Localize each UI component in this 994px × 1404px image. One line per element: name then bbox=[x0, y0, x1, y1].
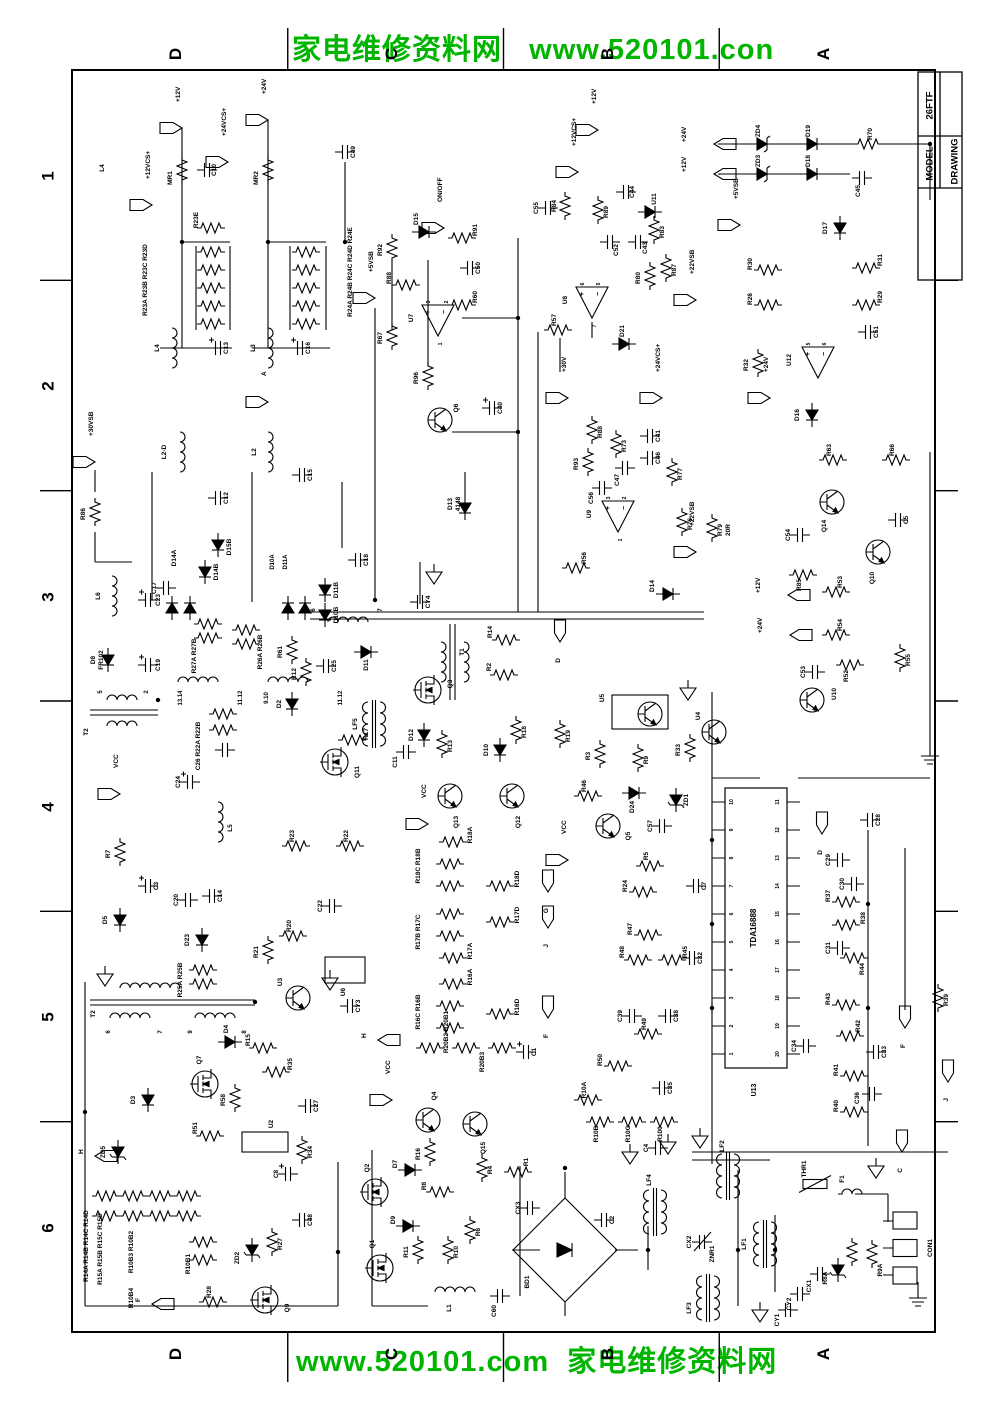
earth-part bbox=[752, 1302, 768, 1322]
z-zd2 bbox=[244, 1238, 260, 1262]
svg-text:R52: R52 bbox=[843, 670, 850, 682]
svg-text:5: 5 bbox=[806, 342, 812, 345]
svg-text:D2: D2 bbox=[276, 699, 283, 708]
svg-text:16: 16 bbox=[775, 939, 781, 945]
r-r17 bbox=[338, 735, 366, 745]
svg-text:U8: U8 bbox=[562, 295, 569, 304]
junction-dot bbox=[866, 1006, 870, 1010]
z-zd4 bbox=[750, 136, 774, 152]
svg-text:C16: C16 bbox=[305, 342, 312, 354]
svg-text:D15B: D15B bbox=[226, 538, 233, 555]
r-part bbox=[197, 247, 225, 257]
c-part bbox=[215, 743, 235, 757]
svg-text:R45: R45 bbox=[682, 946, 689, 958]
svg-text:+30V: +30V bbox=[561, 356, 568, 372]
junction-dot bbox=[253, 1000, 257, 1004]
svg-text:VCC: VCC bbox=[561, 820, 568, 834]
junction-dot bbox=[156, 698, 160, 702]
svg-text:R12: R12 bbox=[291, 668, 298, 680]
fl-+12vcs+ bbox=[556, 167, 578, 178]
svg-text:D17: D17 bbox=[822, 222, 829, 234]
svg-text:R17A: R17A bbox=[467, 942, 474, 959]
svg-text:11.12: 11.12 bbox=[238, 690, 244, 705]
svg-text:C52: C52 bbox=[613, 244, 620, 256]
svg-text:R16: R16 bbox=[415, 1148, 422, 1160]
r-part bbox=[232, 639, 260, 649]
svg-text:C41: C41 bbox=[655, 430, 662, 442]
r-r7 bbox=[115, 838, 125, 866]
svg-text:9: 9 bbox=[729, 828, 735, 831]
schematic-canvas: +12VMR1C10+12VCS+R23ER23A R23B R23C R23D… bbox=[0, 0, 994, 1404]
c-c54 bbox=[790, 528, 810, 542]
svg-text:Q2: Q2 bbox=[364, 1163, 371, 1172]
xf-lf3 bbox=[697, 1274, 720, 1322]
r-r11 bbox=[413, 1236, 423, 1264]
r-r80 bbox=[645, 262, 655, 290]
fl-f bbox=[152, 1299, 174, 1310]
r-r57 bbox=[544, 325, 572, 335]
d-d14b bbox=[199, 560, 211, 584]
svg-text:CY4: CY4 bbox=[425, 595, 432, 608]
svg-text:R16C R16B: R16C R16B bbox=[415, 994, 422, 1029]
fl-f bbox=[543, 996, 554, 1018]
d-d5 bbox=[114, 908, 126, 932]
svg-text:R37: R37 bbox=[825, 890, 832, 902]
gnd-part bbox=[921, 748, 939, 764]
svg-text:R100: R100 bbox=[657, 1126, 664, 1142]
svg-text:C35: C35 bbox=[667, 1082, 674, 1094]
svg-text:R2: R2 bbox=[486, 662, 493, 671]
svg-text:R80: R80 bbox=[635, 272, 642, 284]
earth-part bbox=[868, 1158, 884, 1178]
svg-text:R89: R89 bbox=[603, 206, 610, 218]
svg-text:C54: C54 bbox=[785, 529, 792, 541]
drawing-border bbox=[72, 70, 935, 1332]
svg-text:D19: D19 bbox=[805, 125, 812, 137]
r-r92 bbox=[387, 234, 397, 262]
svg-text:+12V: +12V bbox=[755, 577, 762, 593]
q-u3 bbox=[286, 986, 310, 1010]
svg-text:CX2: CX2 bbox=[686, 1235, 693, 1248]
r-r13 bbox=[437, 730, 447, 758]
r-r93 bbox=[583, 448, 593, 476]
svg-text:C19: C19 bbox=[155, 659, 162, 671]
svg-text:R14: R14 bbox=[487, 626, 494, 638]
svg-text:13: 13 bbox=[775, 855, 781, 861]
svg-text:C26 R22A R22B: C26 R22A R22B bbox=[195, 721, 202, 770]
svg-text:+12V: +12V bbox=[175, 86, 182, 102]
q-q14 bbox=[820, 490, 844, 514]
r-r85 bbox=[789, 570, 817, 580]
svg-text:R4: R4 bbox=[487, 1165, 494, 1174]
svg-text:C40: C40 bbox=[497, 402, 504, 414]
r-r55 bbox=[895, 644, 905, 672]
c-c4 bbox=[648, 1141, 668, 1155]
q-q12 bbox=[500, 784, 524, 808]
svg-text:R39: R39 bbox=[943, 994, 950, 1006]
r-r18a bbox=[439, 837, 467, 847]
svg-text:C57: C57 bbox=[647, 820, 654, 832]
junction-dot bbox=[563, 1166, 567, 1170]
d-d11b bbox=[319, 578, 331, 602]
svg-text:C24: C24 bbox=[175, 776, 182, 788]
svg-text:R43: R43 bbox=[825, 993, 832, 1005]
l-l2 bbox=[268, 432, 273, 472]
junction-dot bbox=[266, 240, 270, 244]
d-d21 bbox=[612, 338, 636, 350]
fl-+22vsb bbox=[674, 547, 696, 558]
svg-text:U10: U10 bbox=[831, 688, 838, 700]
svg-text:C56: C56 bbox=[588, 492, 595, 504]
d-d4 bbox=[218, 1036, 242, 1048]
fl-vcc bbox=[370, 1095, 392, 1106]
svg-text:C51: C51 bbox=[873, 326, 880, 338]
svg-text:D12: D12 bbox=[408, 729, 415, 741]
r-r30 bbox=[754, 265, 782, 275]
svg-text:R10B3 R10B2: R10B3 R10B2 bbox=[128, 1230, 135, 1273]
earth-part bbox=[692, 1128, 708, 1148]
svg-text:C14: C14 bbox=[217, 890, 224, 902]
r-part bbox=[232, 625, 260, 635]
junction-dot bbox=[736, 1248, 740, 1252]
svg-text:U9: U9 bbox=[586, 509, 593, 518]
r-r63 bbox=[819, 455, 847, 465]
svg-text:R91: R91 bbox=[472, 224, 479, 236]
svg-text:−: − bbox=[595, 292, 602, 296]
r-part bbox=[452, 1043, 480, 1053]
junction-dot bbox=[646, 1248, 650, 1252]
svg-text:D11B: D11B bbox=[333, 582, 340, 599]
svg-text:U13: U13 bbox=[751, 1083, 758, 1096]
svg-text:C4: C4 bbox=[643, 1143, 650, 1152]
c-c29 bbox=[830, 853, 850, 867]
svg-text:9: 9 bbox=[188, 1030, 194, 1034]
svg-text:R16A: R16A bbox=[467, 968, 474, 985]
r-r76 bbox=[677, 508, 687, 536]
svg-text:C31: C31 bbox=[825, 942, 832, 954]
box-u5 bbox=[612, 695, 668, 729]
box-u2 bbox=[242, 1132, 288, 1152]
r-part bbox=[146, 1191, 174, 1201]
svg-text:C5: C5 bbox=[903, 515, 910, 524]
svg-text:R13: R13 bbox=[447, 740, 454, 752]
svg-text:U2: U2 bbox=[268, 1119, 275, 1128]
opamp-U9 bbox=[602, 501, 634, 532]
svg-text:C: C bbox=[897, 1168, 904, 1173]
r-r18d bbox=[486, 881, 514, 891]
r-r15 bbox=[249, 1043, 277, 1053]
svg-text:R49: R49 bbox=[641, 1018, 648, 1030]
r-part bbox=[436, 1001, 464, 1011]
svg-text:R35: R35 bbox=[287, 1058, 294, 1070]
q-part bbox=[638, 702, 662, 726]
svg-text:C32: C32 bbox=[697, 952, 704, 964]
svg-text:Q15: Q15 bbox=[480, 1141, 487, 1154]
svg-text:19: 19 bbox=[775, 1023, 781, 1029]
svg-text:U7: U7 bbox=[408, 313, 415, 322]
junction-dot bbox=[710, 1006, 714, 1010]
r-r66 bbox=[882, 455, 910, 465]
svg-text:R33: R33 bbox=[675, 744, 682, 756]
title-block bbox=[918, 72, 962, 280]
opamp-U12 bbox=[802, 347, 834, 378]
svg-text:R10: R10 bbox=[453, 1246, 460, 1258]
r-r51 bbox=[196, 1131, 224, 1141]
r-r100 bbox=[650, 1117, 678, 1127]
svg-text:C18: C18 bbox=[363, 554, 370, 566]
svg-text:D23: D23 bbox=[184, 934, 191, 946]
svg-text:R26: R26 bbox=[747, 293, 754, 305]
svg-text:+24V: +24V bbox=[681, 126, 688, 142]
svg-text:LF5: LF5 bbox=[352, 718, 359, 730]
r-r88 bbox=[392, 280, 420, 290]
svg-text:Q3: Q3 bbox=[447, 679, 454, 688]
svg-text:L6: L6 bbox=[95, 592, 102, 600]
svg-text:R7: R7 bbox=[105, 849, 112, 858]
svg-text:C43: C43 bbox=[642, 242, 649, 254]
box-u6 bbox=[325, 957, 365, 983]
svg-text:R21: R21 bbox=[253, 946, 260, 958]
svg-text:CY1: CY1 bbox=[774, 1313, 781, 1326]
svg-text:D14: D14 bbox=[649, 580, 656, 592]
svg-text:Q14: Q14 bbox=[821, 519, 828, 532]
r-r50 bbox=[604, 1061, 632, 1071]
fl-+5vsb bbox=[718, 220, 740, 231]
m-q1 bbox=[365, 1253, 393, 1283]
svg-text:+24V: +24V bbox=[757, 617, 764, 633]
svg-text:C23: C23 bbox=[155, 594, 162, 606]
svg-text:R20: R20 bbox=[286, 920, 293, 932]
svg-text:7: 7 bbox=[158, 1030, 164, 1034]
svg-text:C48: C48 bbox=[307, 1214, 314, 1226]
c-c31 bbox=[830, 941, 850, 955]
svg-text:R11: R11 bbox=[403, 1246, 410, 1258]
r-r77 bbox=[667, 458, 677, 486]
svg-text:R10A: R10A bbox=[581, 1081, 588, 1098]
r-part bbox=[119, 1211, 147, 1221]
r-r46 bbox=[574, 791, 602, 801]
r-r20 bbox=[279, 931, 307, 941]
m-q11 bbox=[320, 747, 348, 777]
svg-text:Q13: Q13 bbox=[453, 815, 460, 828]
c-c30 bbox=[844, 877, 864, 891]
z-zd5 bbox=[110, 1140, 126, 1164]
svg-text:Q10: Q10 bbox=[869, 571, 876, 584]
svg-text:R23A R23B R23C R23D: R23A R23B R23C R23D bbox=[142, 244, 149, 316]
svg-text:F: F bbox=[543, 1034, 550, 1038]
l-part bbox=[268, 677, 308, 682]
r-part bbox=[209, 709, 237, 719]
svg-text:R54: R54 bbox=[837, 619, 844, 631]
svg-text:Q4: Q4 bbox=[431, 1091, 438, 1100]
svg-text:R27A R27B: R27A R27B bbox=[191, 638, 198, 673]
r-r10 bbox=[443, 1236, 453, 1264]
d-d14 bbox=[656, 588, 680, 600]
svg-text:R34: R34 bbox=[307, 1146, 314, 1158]
r-part bbox=[189, 965, 217, 975]
l-part bbox=[120, 983, 180, 988]
r-r89 bbox=[593, 196, 603, 224]
svg-text:R96: R96 bbox=[413, 372, 420, 384]
svg-text:T2: T2 bbox=[90, 1010, 97, 1018]
svg-text:R16D: R16D bbox=[514, 998, 521, 1015]
d-part bbox=[184, 596, 196, 620]
svg-text:R28: R28 bbox=[206, 1286, 213, 1298]
c-cx3 bbox=[520, 1201, 540, 1215]
d-d24 bbox=[622, 787, 646, 799]
svg-text:C11: C11 bbox=[392, 756, 399, 768]
svg-text:U5: U5 bbox=[599, 693, 606, 702]
svg-text:R15A R15B R15C R15D: R15A R15B R15C R15D bbox=[97, 1213, 104, 1285]
svg-text:CY2: CY2 bbox=[786, 1297, 793, 1310]
svg-text:R10B: R10B bbox=[593, 1125, 600, 1142]
c-c53 bbox=[805, 665, 825, 679]
svg-text:D: D bbox=[555, 658, 562, 663]
svg-text:3: 3 bbox=[729, 996, 735, 999]
svg-text:R63: R63 bbox=[826, 444, 833, 456]
svg-text:5: 5 bbox=[729, 940, 735, 943]
l-part bbox=[195, 1013, 235, 1018]
d-d15 bbox=[412, 226, 436, 238]
c-c36 bbox=[862, 1087, 882, 1101]
svg-text:C3: C3 bbox=[153, 881, 160, 890]
svg-text:C47: C47 bbox=[614, 474, 621, 486]
d-d3 bbox=[142, 1088, 154, 1112]
m-q3 bbox=[413, 675, 441, 705]
svg-text:ON/OFF: ON/OFF bbox=[437, 177, 444, 202]
svg-text:VCC: VCC bbox=[421, 784, 428, 798]
svg-text:C10: C10 bbox=[211, 164, 218, 176]
opamp-U8 bbox=[576, 287, 608, 318]
r-r16 bbox=[425, 1138, 435, 1166]
svg-text:C33: C33 bbox=[881, 1046, 888, 1058]
r-r40 bbox=[840, 1107, 868, 1117]
svg-text:8: 8 bbox=[729, 856, 735, 859]
r-part bbox=[436, 909, 464, 919]
junction-dot bbox=[866, 902, 870, 906]
svg-text:6: 6 bbox=[729, 912, 735, 915]
d-d9 bbox=[396, 1220, 420, 1232]
svg-text:+: + bbox=[425, 310, 432, 314]
c-c34 bbox=[796, 1039, 816, 1053]
q-u4 bbox=[702, 720, 726, 744]
svg-text:FR102: FR102 bbox=[98, 650, 105, 670]
svg-text:R67: R67 bbox=[377, 332, 384, 344]
svg-text:R58: R58 bbox=[220, 1094, 227, 1106]
l-l5 bbox=[218, 802, 223, 842]
svg-text:D13: D13 bbox=[447, 498, 454, 510]
r-r67 bbox=[387, 322, 397, 350]
svg-text:R88: R88 bbox=[386, 272, 393, 284]
svg-text:Q1: Q1 bbox=[369, 1239, 376, 1248]
r-part bbox=[189, 1237, 217, 1247]
svg-text:Q6: Q6 bbox=[453, 403, 460, 412]
c-c20 bbox=[178, 893, 198, 907]
svg-text:C17: C17 bbox=[151, 582, 158, 594]
svg-text:C46: C46 bbox=[655, 452, 662, 464]
svg-text:+24V: +24V bbox=[763, 356, 770, 372]
svg-text:1: 1 bbox=[729, 1052, 735, 1055]
junction-dot bbox=[516, 316, 520, 320]
c-c39 bbox=[622, 1009, 642, 1023]
svg-text:R53: R53 bbox=[837, 576, 844, 588]
svg-text:U4: U4 bbox=[695, 711, 702, 720]
l-part bbox=[464, 642, 469, 682]
junction-dot bbox=[336, 1250, 340, 1254]
l-part bbox=[110, 1013, 150, 1018]
svg-text:R77: R77 bbox=[677, 468, 684, 480]
r-part bbox=[292, 319, 320, 329]
svg-text:R9A: R9A bbox=[877, 1263, 884, 1276]
svg-text:G: G bbox=[543, 908, 550, 913]
svg-text:D11A: D11A bbox=[283, 554, 289, 570]
z-r8a bbox=[830, 1258, 846, 1282]
l-part bbox=[107, 695, 137, 700]
svg-text:R48: R48 bbox=[619, 946, 626, 958]
svg-text:C13: C13 bbox=[223, 342, 230, 354]
svg-text:R30: R30 bbox=[747, 258, 754, 270]
svg-text:LF3: LF3 bbox=[686, 1302, 693, 1314]
svg-text:H: H bbox=[78, 1149, 85, 1154]
svg-text:D24: D24 bbox=[629, 801, 636, 813]
svg-text:R6: R6 bbox=[475, 1227, 482, 1236]
svg-text:R93: R93 bbox=[573, 458, 580, 470]
d-d11 bbox=[354, 646, 378, 658]
svg-text:C27: C27 bbox=[313, 1100, 320, 1112]
svg-text:R10B1: R10B1 bbox=[185, 1253, 192, 1274]
svg-text:C7: C7 bbox=[701, 881, 708, 890]
svg-text:D10: D10 bbox=[483, 744, 490, 756]
fl-+12v bbox=[576, 125, 598, 136]
svg-text:C22: C22 bbox=[317, 900, 324, 912]
svg-text:VCC: VCC bbox=[385, 1060, 392, 1074]
svg-text:C39: C39 bbox=[617, 1010, 624, 1022]
r-r22 bbox=[336, 841, 364, 851]
svg-text:J: J bbox=[943, 1098, 950, 1102]
r-r73 bbox=[611, 430, 621, 458]
svg-text:R15: R15 bbox=[245, 1034, 252, 1046]
r-r34 bbox=[297, 1136, 307, 1164]
d-d19 bbox=[800, 138, 824, 150]
svg-text:L2-D: L2-D bbox=[161, 444, 168, 459]
r-r61 bbox=[287, 636, 297, 664]
d-d10b bbox=[319, 603, 331, 627]
svg-text:R87: R87 bbox=[671, 264, 678, 276]
fl-+12v bbox=[160, 123, 182, 134]
svg-text:D16: D16 bbox=[794, 409, 801, 421]
c-c22 bbox=[322, 899, 342, 913]
svg-text:+: + bbox=[805, 352, 812, 356]
r-r32 bbox=[753, 349, 763, 377]
r-part bbox=[194, 633, 222, 643]
d-u11 bbox=[638, 206, 662, 218]
q-q5 bbox=[596, 814, 620, 838]
svg-text:3: 3 bbox=[426, 300, 432, 303]
earth-part bbox=[97, 966, 113, 986]
c-c11 bbox=[396, 745, 416, 759]
svg-text:Q7: Q7 bbox=[196, 1055, 203, 1064]
l-part bbox=[178, 677, 218, 682]
z-zd3 bbox=[750, 166, 774, 182]
svg-text:R70: R70 bbox=[867, 128, 874, 140]
svg-text:LF4: LF4 bbox=[646, 1174, 653, 1186]
svg-text:1: 1 bbox=[438, 342, 444, 345]
svg-text:CON1: CON1 bbox=[927, 1239, 934, 1257]
svg-text:R23E: R23E bbox=[193, 211, 200, 228]
q-q15 bbox=[463, 1112, 487, 1136]
svg-text:J: J bbox=[543, 944, 550, 948]
r-r5 bbox=[636, 861, 664, 871]
